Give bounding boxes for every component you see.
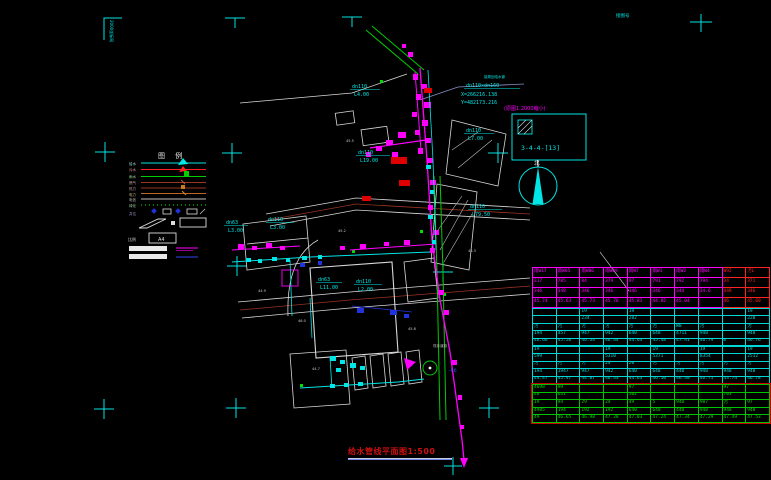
table-cell <box>556 316 580 323</box>
table-cell: 45.47 <box>556 376 580 383</box>
legend-item-label: 污水 <box>129 167 136 172</box>
table-cell: 640 <box>627 331 651 338</box>
table-cell: 47.28 <box>604 415 628 423</box>
table-cell: 49 <box>627 400 651 408</box>
table-cell: 2512 <box>746 354 770 361</box>
table-cell: 84 <box>580 278 604 288</box>
table-section: 191919234282228污污污污污污W0污污194457947942640… <box>532 308 770 346</box>
legend-item-label: 绿化 <box>129 203 136 208</box>
table-cell: 19 <box>651 346 675 353</box>
table-cell: 污 <box>651 323 675 330</box>
legend-item-label: 热力 <box>129 186 136 191</box>
table-cell: 45.56 <box>556 338 580 345</box>
table-cell: 348 <box>556 288 580 298</box>
table-cell <box>604 316 628 323</box>
table-cell <box>722 346 746 353</box>
table-cell <box>580 354 604 361</box>
table-cell: 46.98 <box>580 415 604 423</box>
flow-arrow <box>404 358 416 370</box>
table-cell: 雨W09 <box>604 268 628 278</box>
table-cell: 194 <box>556 407 580 415</box>
table-cell: 948 <box>722 369 746 376</box>
table-cell: 948 <box>746 407 770 415</box>
legend-symbol-tick <box>200 209 205 214</box>
table-cell: 雨W4 <box>698 268 722 278</box>
table-cell: 雨W05 <box>556 268 580 278</box>
table-cell: 648 <box>651 369 675 376</box>
spot-elevation: 46.3 <box>468 249 476 253</box>
table-cell: 317 <box>533 278 557 288</box>
table-cell: 45.73 <box>580 298 604 308</box>
table-cell: 污 <box>698 323 722 330</box>
table-cell: 污 <box>533 361 557 368</box>
legend-item-label: 给水 <box>129 161 136 166</box>
table-cell: 97 <box>627 278 651 288</box>
table-cell <box>698 309 722 316</box>
table-cell: 污 <box>675 361 699 368</box>
legend-title: 图 例 <box>158 151 186 160</box>
table-cell: 47.41 <box>675 338 699 345</box>
table-cell: 4698 <box>533 384 557 392</box>
table-cell: 污 <box>722 400 746 408</box>
table-cell: 45.48 <box>651 338 675 345</box>
table-cell: 45.81 <box>627 298 651 308</box>
cross-mark <box>227 256 247 276</box>
table-cell: 44.47 <box>533 376 557 383</box>
table-cell: 346 <box>746 288 770 298</box>
table-cell: 19 <box>698 346 722 353</box>
cross-mark <box>222 143 242 163</box>
r6-label: -R6 <box>449 368 457 374</box>
legend-symbol-ramp <box>139 219 166 228</box>
cross-mark <box>94 399 114 419</box>
cad-viewport: 2000坐标网 接图号 图 例 给水 污水 雨水 燃气 热力 电力 电信 绿化 … <box>0 0 771 480</box>
table-cell: 45.76 <box>604 298 628 308</box>
legend-bar <box>129 254 167 259</box>
callout-note: 接规划给水管 <box>484 74 505 79</box>
legend-symbol-frame <box>180 218 206 227</box>
legend-symbol-square <box>171 221 175 225</box>
table-cell: 19 <box>604 346 628 353</box>
table-section: 469899979746D3150270319942924495940987污9… <box>532 384 770 423</box>
table-cell <box>675 354 699 361</box>
table-cell <box>675 309 699 316</box>
table-cell: 648 <box>651 331 675 338</box>
pipe-size-label: dn63 <box>318 277 330 283</box>
legend-bar <box>129 246 167 251</box>
table-cell: 97 <box>627 384 651 392</box>
table-cell: 948 <box>698 369 722 376</box>
table-cell: 99 <box>556 384 580 392</box>
detail-ref-number: 3-4-4-[13] <box>521 144 560 152</box>
table-cell: 948 <box>698 331 722 338</box>
table-cell: 640 <box>627 369 651 376</box>
table-cell: 440 <box>675 369 699 376</box>
table-cell: 4711 <box>675 331 699 338</box>
table-cell: 雨W2 <box>675 268 699 278</box>
table-cell: W0 <box>675 323 699 330</box>
legend-symbol <box>181 185 185 189</box>
table-cell: 47.03 <box>627 415 651 423</box>
table-cell <box>746 392 770 400</box>
table-cell: 440 <box>675 407 699 415</box>
table-cell: 污L <box>746 268 770 278</box>
table-cell: 346 <box>627 288 651 298</box>
legend-item-label: 井位 <box>129 211 136 216</box>
table-cell: 97 <box>722 384 746 392</box>
table-cell: 194 <box>533 331 557 338</box>
table-cell <box>556 346 580 353</box>
table-cell: D31 <box>556 392 580 400</box>
table-cell: 192 <box>580 407 604 415</box>
table-cell: 44.82 <box>651 298 675 308</box>
table-cell: 43.74 <box>722 376 746 383</box>
table-cell: 792 <box>675 278 699 288</box>
table-cell <box>675 316 699 323</box>
pipe-length-label: L3.00 <box>228 228 243 234</box>
table-cell: 46.44 <box>604 338 628 345</box>
table-cell: 44.63 <box>627 376 651 383</box>
table-cell: 44.07 <box>580 376 604 383</box>
pipe-length-label: L11.00 <box>320 285 338 291</box>
table-cell: 97 <box>746 400 770 408</box>
table-cell: 46.34 <box>580 338 604 345</box>
table-cell <box>604 309 628 316</box>
legend-a4-label: A4 <box>158 237 165 243</box>
table-cell: 46 <box>533 392 557 400</box>
pipe-length-label: L2.00 <box>358 287 373 293</box>
legend-scale-label: 比例 <box>128 236 136 242</box>
table-cell: 污 <box>722 361 746 368</box>
spot-elevations: 45.2 46.0 45.8 44.9 46.3 45.5 44.7 现状道路 … <box>258 139 476 374</box>
table-cell <box>675 392 699 400</box>
table-cell: 234 <box>580 316 604 323</box>
table-cell: 1947 <box>556 369 580 376</box>
table-cell <box>698 384 722 392</box>
table-cell <box>722 331 746 338</box>
table-cell: 19 <box>533 400 557 408</box>
legend-symbol <box>184 171 189 176</box>
legend-symbol-well <box>175 208 181 214</box>
table-cell: 污 <box>580 361 604 368</box>
pipe-size-label: dn110 <box>358 150 373 156</box>
table-cell: 19 <box>580 309 604 316</box>
table-cell: 4985 <box>533 407 557 415</box>
pipe-length-label: L19.00 <box>360 158 378 164</box>
table-cell: 45.60 <box>746 298 770 308</box>
table-cell: 346 <box>604 288 628 298</box>
table-cell <box>533 309 557 316</box>
table-cell: 942 <box>604 331 628 338</box>
corner-note-right: 接图号 <box>616 12 630 19</box>
table-cell: 45.04 <box>675 298 699 308</box>
detail-reference: (原图1:2000缩小) 3-4-4-[13] <box>504 105 586 160</box>
table-cell: 34 <box>722 278 746 288</box>
table-cell: 19 <box>746 346 770 353</box>
cross-mark <box>226 398 246 418</box>
table-cell: 502 <box>627 392 651 400</box>
legend-item-label: 雨水 <box>129 174 136 179</box>
table-cell: 344 <box>675 288 699 298</box>
table-cell: 47.53 <box>746 415 770 423</box>
table-cell: 46.10 <box>651 376 675 383</box>
table-cell: 雨W06 <box>580 268 604 278</box>
table-cell: 29 <box>580 400 604 408</box>
table-cell: 污 <box>651 361 675 368</box>
table-cell <box>651 309 675 316</box>
table-cell: 雨W17 <box>533 268 557 278</box>
table-cell: 47.29 <box>698 415 722 423</box>
corner-note-left: 2000坐标网 <box>109 20 115 42</box>
table-cell <box>651 316 675 323</box>
table-cell <box>698 298 722 308</box>
table-cell: 648 <box>651 407 675 415</box>
table-cell: 污 <box>698 361 722 368</box>
spot-elevation: 46.0 <box>298 319 306 323</box>
table-cell: 46.66 <box>533 338 557 345</box>
table-cell: 47.49 <box>722 415 746 423</box>
table-cell: 940 <box>675 400 699 408</box>
table-cell <box>556 309 580 316</box>
table-cell <box>651 384 675 392</box>
table-cell: 346 <box>580 288 604 298</box>
callout-y-coord: Y=482173.216 <box>461 100 497 106</box>
table-cell <box>580 346 604 353</box>
table-cell: 污 <box>556 323 580 330</box>
table-cell: 19 <box>627 309 651 316</box>
table-cell <box>580 392 604 400</box>
table-cell: 46.40 <box>675 376 699 383</box>
table-cell: 457 <box>556 331 580 338</box>
table-cell: 5310 <box>604 354 628 361</box>
table-cell: 44R <box>722 288 746 298</box>
table-cell: 599 <box>533 354 557 361</box>
legend-item-label: 电信 <box>129 197 136 202</box>
north-arrow: 北 <box>519 159 557 205</box>
table-cell: 791 <box>651 278 675 288</box>
pipe-size-label: dn110 <box>352 84 367 90</box>
table-cell: 24 <box>604 400 628 408</box>
table-cell: 947 <box>580 331 604 338</box>
table-section: 19191919195995310537183542512污污污2420污污污污… <box>532 346 770 384</box>
table-cell: 污 <box>746 323 770 330</box>
table-cell: 34.6 <box>698 288 722 298</box>
north-label: 北 <box>534 159 540 167</box>
pipe-length-label: L3.00 <box>270 225 285 231</box>
legend-symbol-well <box>151 208 157 214</box>
callout-pipe: dn110×dn160 <box>466 83 499 89</box>
table-cell: 49 <box>533 415 557 423</box>
table-cell: 5 <box>651 400 675 408</box>
table-cell: 污 <box>746 361 770 368</box>
table-cell: 640 <box>627 407 651 415</box>
elevation-table: 雨W17雨W05雨W06雨W09雨W7雨W1雨W2雨W4W92污L3177858… <box>532 267 770 423</box>
spot-elevation: 44.7 <box>312 367 320 371</box>
table-cell: m <box>722 338 746 345</box>
corner-t-mark <box>690 14 712 32</box>
table-cell <box>556 354 580 361</box>
spot-elevation: 45.2 <box>338 229 346 233</box>
table-cell <box>746 384 770 392</box>
road-label: 现状道路 <box>433 343 447 348</box>
pipe-size-label: dn110 <box>466 128 481 134</box>
table-cell <box>604 392 628 400</box>
drawing-title: 给水管线平面图1:500 <box>348 446 468 457</box>
table-cell: 346 <box>651 288 675 298</box>
table-cell: 5371 <box>651 354 675 361</box>
table-cell <box>675 384 699 392</box>
pipe-size-label: dn110 <box>268 217 283 223</box>
table-cell <box>651 392 675 400</box>
table-cell <box>604 384 628 392</box>
table-cell: 46.43 <box>604 376 628 383</box>
table-cell: 45.63 <box>556 298 580 308</box>
pipe-size-label: dn63 <box>226 220 238 226</box>
spot-elevation: 44.9 <box>258 289 266 293</box>
table-cell: 8354 <box>698 354 722 361</box>
pipe-size-label: dn110 <box>356 279 371 285</box>
legend-item-label: 燃气 <box>129 180 136 185</box>
table-cell: 雨W7 <box>627 268 651 278</box>
table-cell <box>722 309 746 316</box>
table-cell <box>698 316 722 323</box>
table-cell: 794 <box>698 278 722 288</box>
table-cell: 987 <box>698 400 722 408</box>
table-cell: 46.78 <box>746 376 770 383</box>
drawing-title-block: 给水管线平面图1:500 <box>348 446 468 460</box>
table-cell: 948 <box>746 369 770 376</box>
table-cell <box>533 316 557 323</box>
table-cell: 45.74 <box>533 298 557 308</box>
table-cell: 346 <box>533 288 557 298</box>
table-cell: 污 <box>556 361 580 368</box>
table-cell: 污 <box>604 323 628 330</box>
table-cell: 785 <box>556 278 580 288</box>
table-cell: 46.65 <box>556 415 580 423</box>
spot-elevation: 45.8 <box>408 327 416 331</box>
table-cell: 948 <box>722 407 746 415</box>
table-cell <box>627 346 651 353</box>
table-cell: 379 <box>604 278 628 288</box>
table-cell: 947 <box>580 369 604 376</box>
table-cell: 20 <box>627 361 651 368</box>
water-cyan <box>232 70 436 388</box>
callout-x-coord: X=266216.138 <box>461 92 497 98</box>
corner-t-mark <box>225 18 245 28</box>
legend: 图 例 给水 污水 雨水 燃气 热力 电力 电信 绿化 井位 比例 <box>128 151 206 259</box>
table-cell: W92 <box>722 268 746 278</box>
table-cell: 19 <box>533 346 557 353</box>
table-cell: 46.76 <box>746 338 770 345</box>
table-cell: 703 <box>722 392 746 400</box>
connection-callout: 接规划给水管 dn110×dn160 X=266216.138 Y=482173… <box>461 74 520 106</box>
detail-note: (原图1:2000缩小) <box>504 105 546 112</box>
table-cell: 污 <box>533 323 557 330</box>
table-cell: 46 <box>722 298 746 308</box>
table-cell <box>722 316 746 323</box>
table-section: 雨W17雨W05雨W06雨W09雨W7雨W1雨W2雨W4W92污L3177858… <box>532 267 770 308</box>
legend-symbol-box <box>163 209 171 214</box>
legend-symbol-box <box>187 209 197 214</box>
table-cell: 46.79 <box>698 338 722 345</box>
legend-item-label: 电力 <box>129 192 136 197</box>
table-cell: 228 <box>746 316 770 323</box>
cross-mark <box>95 142 115 162</box>
table-cell <box>722 323 746 330</box>
cross-mark <box>479 398 499 418</box>
table-cell <box>698 392 722 400</box>
north-needle <box>533 167 544 204</box>
table-cell <box>627 354 651 361</box>
table-cell: 942 <box>604 369 628 376</box>
table-cell <box>675 346 699 353</box>
pipe-length-label: L4.00 <box>354 92 369 98</box>
table-cell: 46.71 <box>698 376 722 383</box>
table-cell <box>722 354 746 361</box>
table-cell: 282 <box>627 316 651 323</box>
pipe-length-label: L79.50 <box>472 212 490 218</box>
table-cell: 雨W1 <box>651 268 675 278</box>
table-cell: 948 <box>698 407 722 415</box>
table-cell: 污 <box>580 323 604 330</box>
table-cell: 371 <box>746 278 770 288</box>
table-cell: 192 <box>604 407 628 415</box>
table-cell: 47.24 <box>651 415 675 423</box>
pipe-length-label: L7.00 <box>468 136 483 142</box>
table-cell: 47.34 <box>675 415 699 423</box>
table-cell <box>580 384 604 392</box>
cross-mark <box>488 143 508 163</box>
corner-t-mark <box>342 17 362 27</box>
table-cell: 94 <box>556 400 580 408</box>
pipe-size-label: dn110 <box>470 204 485 210</box>
spot-elevation: 45.5 <box>346 139 354 143</box>
title-underline-accent <box>348 459 452 460</box>
table-cell: 948 <box>746 331 770 338</box>
table-cell: 24 <box>604 361 628 368</box>
table-cell: 19 <box>746 309 770 316</box>
table-cell: 194 <box>533 369 557 376</box>
table-cell: 44.64 <box>627 338 651 345</box>
table-cell: 污 <box>627 323 651 330</box>
